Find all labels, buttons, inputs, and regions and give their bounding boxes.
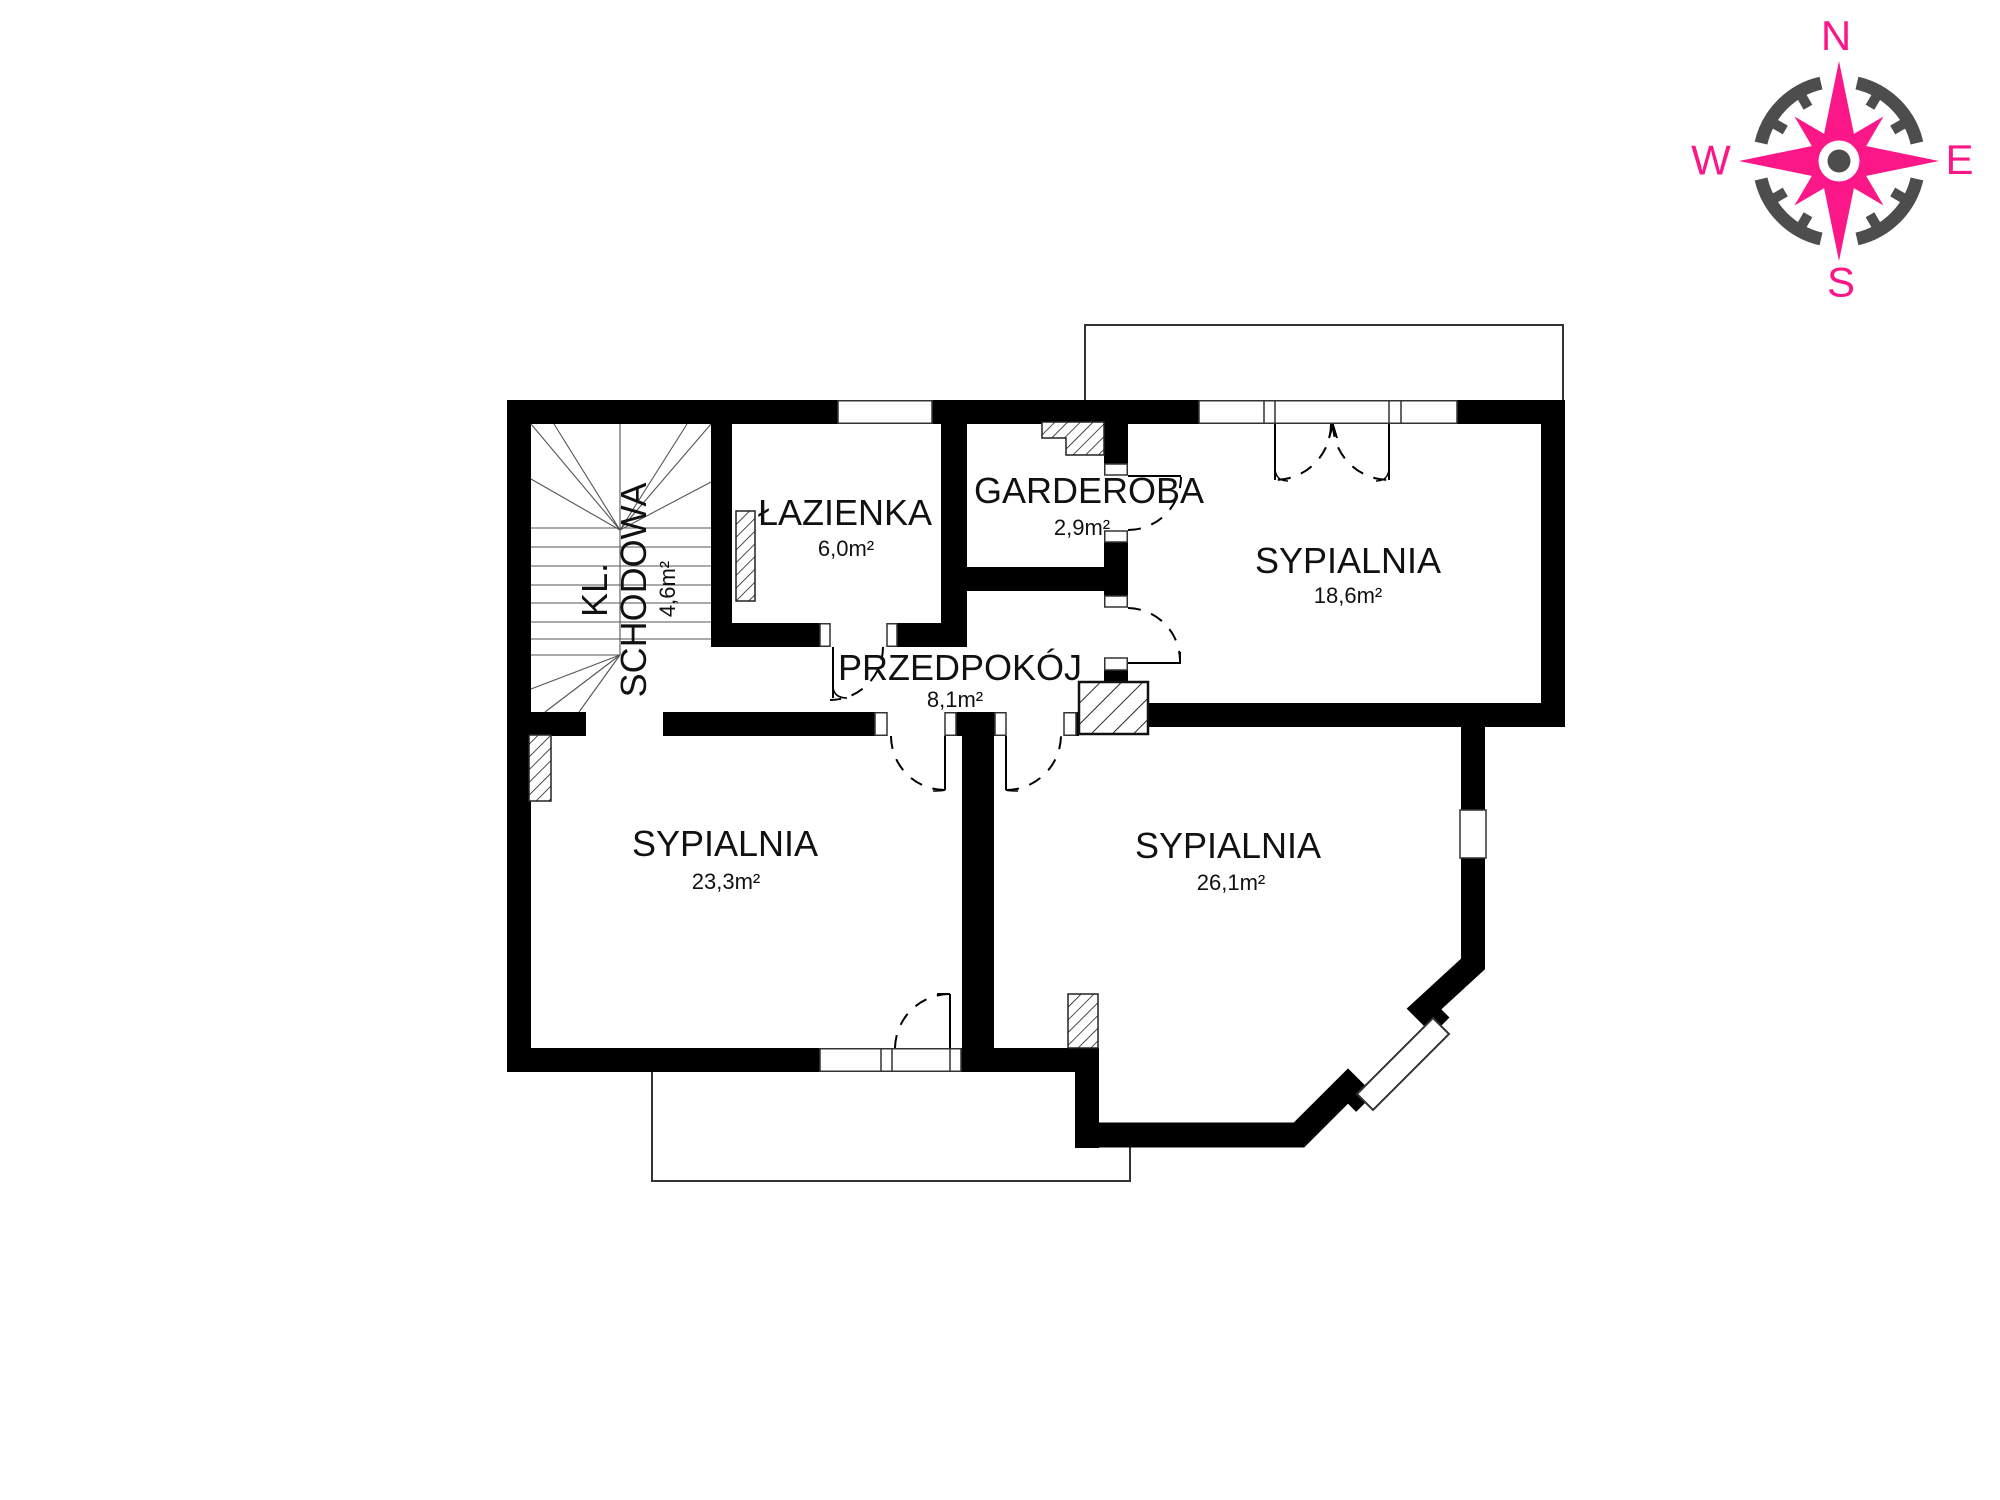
svg-text:8,1m²: 8,1m² [927, 687, 983, 712]
svg-text:PRZEDPOKÓJ: PRZEDPOKÓJ [838, 647, 1082, 688]
svg-text:S: S [1827, 259, 1855, 306]
svg-text:GARDEROBA: GARDEROBA [974, 470, 1204, 511]
svg-text:4,6m²: 4,6m² [655, 561, 680, 617]
svg-text:E: E [1945, 136, 1973, 183]
svg-text:SYPIALNIA: SYPIALNIA [1135, 825, 1321, 866]
svg-text:ŁAZIENKA: ŁAZIENKA [758, 492, 932, 533]
svg-text:W: W [1691, 137, 1731, 184]
svg-text:SYPIALNIA: SYPIALNIA [632, 823, 818, 864]
svg-text:N: N [1821, 12, 1851, 59]
svg-text:23,3m²: 23,3m² [692, 869, 760, 894]
svg-text:SYPIALNIA: SYPIALNIA [1255, 540, 1441, 581]
svg-text:2,9m²: 2,9m² [1054, 515, 1110, 540]
svg-text:26,1m²: 26,1m² [1197, 870, 1265, 895]
svg-text:18,6m²: 18,6m² [1314, 583, 1382, 608]
svg-text:6,0m²: 6,0m² [818, 536, 874, 561]
